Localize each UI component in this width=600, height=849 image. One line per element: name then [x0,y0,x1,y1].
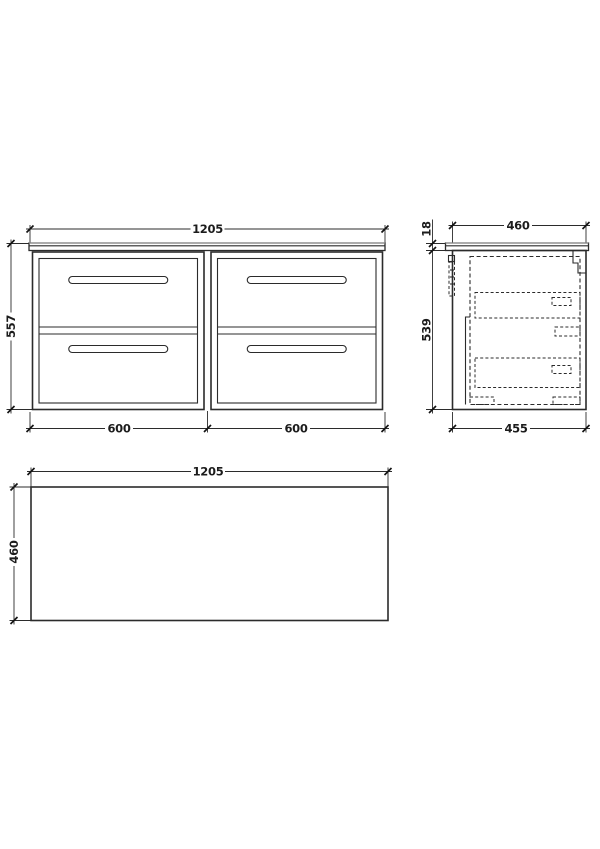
drawer-handle-bottom-left [69,346,168,353]
side-carcass-hidden [470,257,580,405]
front-view: 1205 557 600 600 [4,222,389,436]
wall-bracket-pin [449,256,455,262]
side-cabinet-outline [453,251,587,410]
drawer-handle-top-right [247,277,346,284]
front-worktop [29,243,385,251]
vanity-unit-dimension-drawing: 1205 557 600 600 [0,0,600,849]
wall-bracket [449,256,455,297]
dim-plan-width: 1205 [27,465,392,487]
front-cabinet-left [33,252,205,410]
plan-view: 1205 460 [7,465,392,625]
front-width-label: 1205 [192,222,223,236]
side-runner-right-hidden [553,397,580,405]
side-worktop-thickness-label: 18 [420,221,434,237]
side-handle-bottom-hidden [552,366,571,374]
rotated-label-group: 460 [7,538,21,566]
plan-worktop-outline [31,487,388,621]
side-view: 460 18 539 [420,219,591,436]
side-worktop-depth-label: 460 [506,219,529,233]
drawer-handle-bottom-right [247,346,346,353]
cabinet-left-outline [33,252,205,410]
dim-side-heights: 18 539 [420,219,453,414]
dim-side-cabinet-depth: 455 [449,412,591,436]
dim-front-sections: 600 600 [26,411,389,436]
dim-side-worktop-depth: 460 [449,219,591,243]
side-worktop [446,243,589,251]
technical-drawing-sheet: 1205 557 600 600 [0,0,600,849]
rotated-label-group: 557 [4,313,18,341]
dim-plan-depth: 460 [7,483,31,625]
side-cabinet-depth-label: 455 [504,422,527,436]
side-runner-left-hidden [470,397,494,405]
side-handle-top-hidden [552,298,571,306]
cabinet-right-frame [218,259,377,404]
front-right-section-label: 600 [284,422,307,436]
front-height-label: 557 [4,315,18,338]
cabinet-right-outline [211,252,383,410]
dim-front-height: 557 [4,240,32,414]
side-panel-step [466,317,471,405]
side-cabinet-height-label: 539 [420,318,434,341]
rotated-label-group: 539 [420,316,434,344]
front-cabinet-right [211,252,383,410]
front-left-section-label: 600 [107,422,130,436]
cabinet-left-frame [39,259,198,404]
dim-front-width: 1205 [26,222,389,243]
side-handle-middle-hidden [555,327,580,336]
plan-depth-label: 460 [7,540,21,563]
plan-width-label: 1205 [193,465,224,479]
side-drawerbox-bottom-hidden [475,358,580,388]
drawer-handle-top-left [69,277,168,284]
rotated-label-group: 18 [420,219,434,239]
